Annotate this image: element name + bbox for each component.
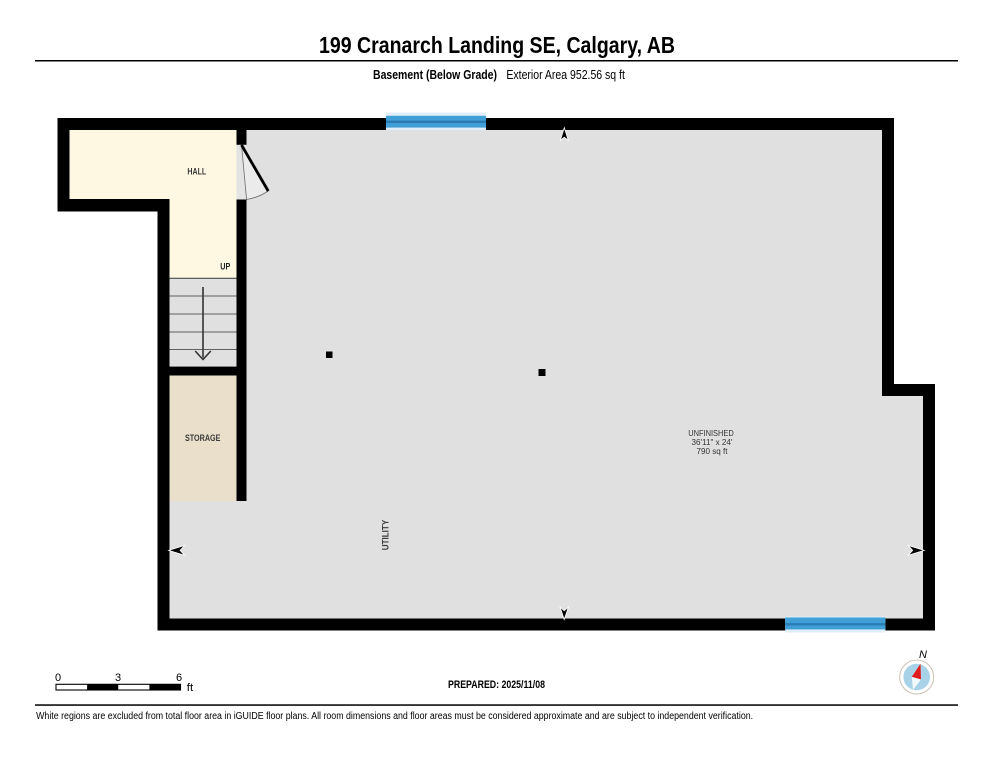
svg-text:UTILITY: UTILITY — [380, 520, 390, 551]
svg-text:STORAGE: STORAGE — [185, 433, 221, 443]
svg-text:UP: UP — [220, 262, 230, 272]
svg-text:3: 3 — [115, 672, 121, 684]
svg-text:790 sq ft: 790 sq ft — [697, 446, 729, 456]
svg-text:HALL: HALL — [187, 166, 206, 176]
svg-text:6: 6 — [176, 672, 182, 684]
svg-text:ft: ft — [187, 682, 193, 694]
svg-text:White regions are excluded fro: White regions are excluded from total fl… — [36, 711, 753, 722]
svg-text:Basement (Below Grade): Basement (Below Grade) — [373, 68, 497, 82]
svg-text:Exterior Area 952.56 sq ft: Exterior Area 952.56 sq ft — [506, 68, 625, 82]
svg-text:PREPARED: 2025/11/08: PREPARED: 2025/11/08 — [448, 679, 545, 691]
svg-text:199 Cranarch Landing SE, Calga: 199 Cranarch Landing SE, Calgary, AB — [319, 32, 675, 58]
svg-text:0: 0 — [55, 672, 61, 684]
svg-text:N: N — [919, 649, 927, 661]
